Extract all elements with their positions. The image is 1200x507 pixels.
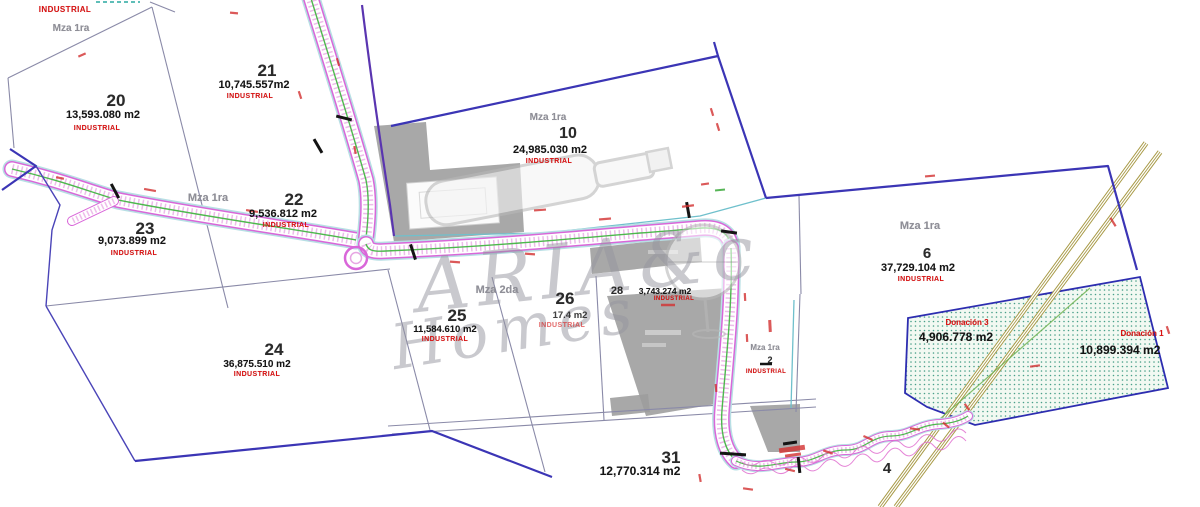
parcel-6-block: Mza 1ra [900, 221, 940, 232]
donation-3-label: Donación 3 [945, 319, 988, 327]
block-label-mid-left: Mza 1ra [188, 193, 228, 204]
parcel-2-zoning: INDUSTRIAL [746, 369, 786, 375]
parcel-22-number: 22 [285, 191, 304, 208]
parcel-28-zoning: INDUSTRIAL [654, 296, 694, 302]
parcel-24-area: 36,875.510 m2 [223, 360, 290, 370]
parcel-2-number: 2 [767, 356, 772, 365]
donation-3-area: 4,906.778 m2 [919, 331, 993, 343]
zoning-label-top: INDUSTRIAL [39, 6, 91, 14]
donation-1-label: Donación 1 [1120, 330, 1163, 338]
parcel-10-zoning: INDUSTRIAL [526, 158, 572, 165]
parcel-21-area: 10,745.557m2 [219, 80, 290, 91]
parcel-10-number: 10 [559, 126, 577, 142]
parcel-22-zoning: INDUSTRIAL [263, 222, 309, 229]
parcel-6-area: 37,729.104 m2 [881, 263, 955, 274]
block-label-top-left: Mza 1ra [53, 24, 90, 34]
parcel-26-number: 26 [556, 290, 575, 307]
parcel-24-zoning: INDUSTRIAL [234, 371, 280, 378]
parcel-26-zoning: INDUSTRIAL [539, 322, 585, 329]
parcel-25-number: 25 [448, 307, 467, 324]
parcel-24-number: 24 [265, 341, 284, 358]
parcel-6-zoning: INDUSTRIAL [898, 276, 944, 283]
parcel-20-area: 13,593.080 m2 [66, 110, 140, 121]
parcel-20-number: 20 [107, 92, 126, 109]
parcel-4-number: 4 [883, 461, 891, 476]
parcel-23-zoning: INDUSTRIAL [111, 250, 157, 257]
parcel-25-zoning: INDUSTRIAL [422, 336, 468, 343]
parcel-2-block: Mza 1ra [750, 344, 779, 352]
cadastral-map: ARIA&c Homes INDUSTRIAL Mza 1ra Mza 1ra … [0, 0, 1200, 507]
parcel-25-area: 11,584.610 m2 [413, 325, 476, 335]
parcel-28-number: 28 [611, 286, 623, 297]
parcel-31-area: 12,770.314 m2 [600, 465, 681, 477]
donation-1-area: 10,899.394 m2 [1080, 344, 1161, 356]
parcel-20-zoning: INDUSTRIAL [74, 125, 120, 132]
parcel-23-area: 9,073.899 m2 [98, 236, 166, 247]
parcel-21-number: 21 [258, 62, 277, 79]
parcel-22-area: 9,536.812 m2 [249, 209, 317, 220]
parcel-28-area: 3,743.274 m2 [639, 287, 691, 296]
map-linework [0, 0, 1200, 507]
parcel-10-block: Mza 1ra [530, 113, 567, 123]
parcel-26-area: 17.4 m2 [553, 311, 588, 321]
parcel-10-area: 24,985.030 m2 [513, 145, 587, 156]
parcel-21-zoning: INDUSTRIAL [227, 93, 273, 100]
parcel-6-number: 6 [923, 246, 931, 261]
block-label-mza-2da: Mza 2da [476, 285, 519, 296]
